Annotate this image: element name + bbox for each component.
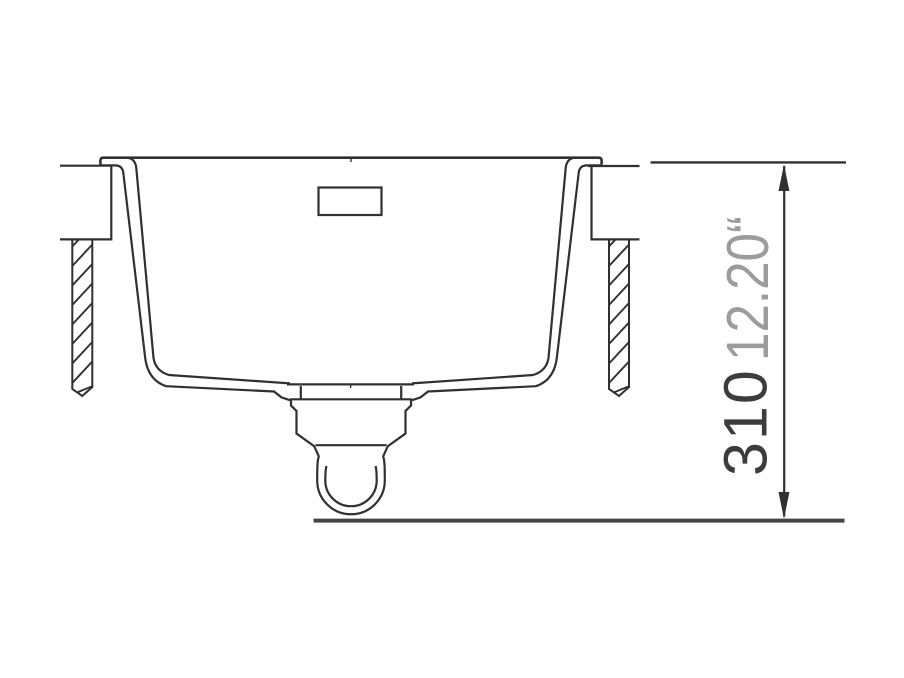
svg-text:310: 310 [712, 368, 780, 476]
svg-text:12.20“: 12.20“ [715, 216, 781, 361]
